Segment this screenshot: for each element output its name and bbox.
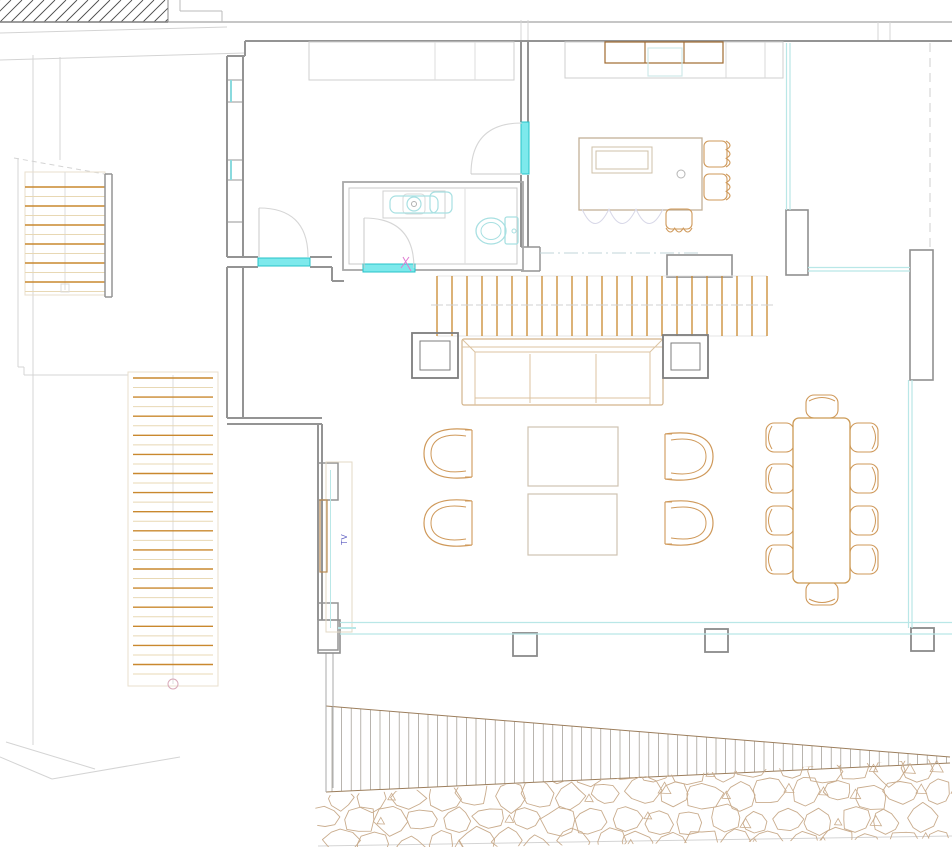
hatch-line	[33, 0, 55, 22]
stone	[926, 779, 950, 804]
bathroom-inner	[349, 188, 517, 264]
stone	[793, 777, 820, 806]
side-table	[663, 335, 708, 378]
stone	[726, 782, 755, 812]
chair-back	[769, 467, 773, 490]
stone	[777, 753, 803, 779]
stone	[638, 759, 672, 782]
sofa-line	[463, 340, 475, 352]
site-line	[0, 27, 227, 33]
stone	[908, 802, 939, 832]
deck-post	[705, 629, 728, 652]
stone	[712, 804, 740, 832]
stone	[591, 784, 619, 803]
hatch-line	[154, 0, 176, 22]
chair-seat	[850, 464, 878, 493]
window-sill	[258, 258, 310, 266]
slat-band	[431, 276, 773, 336]
chair-back	[809, 599, 835, 603]
stone-small	[341, 765, 349, 772]
stone	[684, 831, 718, 847]
hatch-line	[0, 0, 22, 22]
chair-back	[809, 398, 835, 402]
chair-seat	[766, 545, 794, 574]
stone	[322, 829, 360, 847]
chair-seat	[766, 464, 794, 493]
stone	[819, 827, 852, 847]
wall-pier	[786, 210, 808, 275]
chair-back	[872, 548, 876, 571]
side-table	[412, 333, 458, 378]
bathroom-outline	[343, 182, 523, 270]
stone	[310, 806, 340, 826]
hatch-line	[66, 0, 88, 22]
toilet-button	[512, 229, 516, 233]
dining-chair	[806, 582, 838, 605]
stone	[557, 828, 590, 847]
stairs-lower	[128, 372, 218, 689]
dining-chair	[850, 423, 878, 452]
hatch-line	[121, 0, 143, 22]
hatch-line	[0, 0, 11, 22]
bathroom-fixtures	[383, 191, 518, 244]
door-threshold	[521, 122, 529, 174]
stone	[341, 754, 368, 779]
armchair-seat	[671, 507, 706, 539]
soap-tray	[430, 192, 452, 213]
kitchen-island	[579, 138, 702, 210]
stone-small	[706, 769, 715, 777]
dining-set	[766, 395, 878, 605]
stone-small	[804, 759, 813, 767]
stone	[901, 754, 933, 782]
armchair-seat	[431, 435, 466, 472]
floor-plan: TV	[0, 0, 952, 847]
chair-seat	[806, 395, 838, 418]
kitchen-cabinet	[605, 42, 723, 63]
wedge-top	[326, 706, 950, 757]
island-chair-scallops	[582, 209, 663, 224]
stone	[602, 759, 637, 780]
stone	[743, 811, 767, 833]
armchair-seat	[431, 506, 466, 540]
stone-paving	[304, 750, 952, 847]
stone	[440, 755, 472, 783]
stone	[883, 782, 918, 805]
deck-post	[911, 628, 934, 651]
stone	[505, 757, 536, 778]
stone	[645, 811, 674, 835]
wall-pier	[910, 250, 933, 380]
tv-niche	[326, 462, 352, 632]
chair-back	[872, 509, 876, 532]
coffee-table	[528, 494, 617, 555]
kitchen	[565, 42, 783, 224]
armchair	[665, 433, 713, 480]
dining-chair	[850, 506, 878, 535]
chair-back	[769, 509, 773, 532]
dining-chair	[850, 464, 878, 493]
dining-table	[793, 418, 850, 583]
stone	[687, 783, 724, 809]
hatch-line	[132, 0, 154, 22]
stone	[514, 808, 541, 830]
armchair	[665, 501, 713, 545]
site-line	[0, 757, 52, 779]
side-table-inner	[420, 341, 450, 370]
island-knob	[677, 170, 685, 178]
armchair	[424, 500, 472, 546]
chair-seat	[850, 423, 878, 452]
stone	[844, 807, 871, 833]
stone	[540, 807, 574, 837]
chair-seat	[766, 423, 794, 452]
stone	[677, 812, 702, 834]
toilet-bowl-inner	[481, 223, 501, 240]
dining-chair	[766, 423, 794, 452]
stone-small	[850, 789, 861, 799]
dining-chair	[766, 545, 794, 574]
sofa	[462, 339, 663, 405]
doors	[259, 123, 522, 268]
deck-wall-block	[318, 620, 340, 653]
stone	[444, 807, 471, 833]
stone	[661, 782, 688, 807]
stone	[491, 827, 522, 847]
chair-seat	[850, 545, 878, 574]
hatch-line	[44, 0, 66, 22]
stone-small	[740, 818, 751, 828]
island-cooktop	[596, 151, 648, 169]
stone	[345, 807, 374, 831]
bar-stool	[704, 141, 730, 167]
stone	[669, 760, 704, 784]
bar-stool	[704, 174, 730, 200]
stone	[823, 781, 849, 800]
stairs-upper	[25, 172, 105, 295]
chair-back	[872, 426, 876, 449]
wedge-hatch	[326, 706, 950, 792]
hatch-line	[55, 0, 77, 22]
hatch-block	[0, 0, 187, 22]
stone	[598, 828, 627, 847]
dining-chair	[766, 506, 794, 535]
stone	[555, 782, 585, 810]
chair-back	[769, 548, 773, 571]
stone-small	[769, 760, 777, 767]
hatch-line	[88, 0, 110, 22]
tv-label: TV	[340, 534, 349, 545]
living-furniture	[412, 141, 730, 555]
door-swing-arc	[471, 123, 522, 174]
stone	[753, 778, 786, 803]
sofa-line	[650, 340, 662, 352]
hatch-line	[11, 0, 33, 22]
hatch-lines	[0, 0, 187, 22]
stone	[790, 831, 819, 847]
hatch-line	[77, 0, 99, 22]
stone	[852, 834, 880, 847]
bar-stool	[666, 209, 692, 232]
wardrobe	[309, 42, 514, 80]
stone	[475, 754, 509, 778]
stone	[575, 756, 604, 786]
stone	[804, 808, 831, 835]
dining-chair	[766, 464, 794, 493]
side-table-inner	[671, 343, 700, 370]
deck-post	[513, 633, 537, 656]
door-swing-arc	[259, 208, 308, 257]
chair-seat	[766, 506, 794, 535]
stool-seat	[704, 174, 727, 200]
stone	[304, 752, 339, 779]
faucet	[407, 197, 421, 211]
stone-small	[835, 819, 842, 826]
armchair	[424, 429, 472, 478]
site-line	[52, 757, 180, 779]
stone-small	[585, 794, 593, 802]
chair-seat	[850, 506, 878, 535]
hatch-line	[110, 0, 132, 22]
stone	[874, 809, 899, 834]
stone	[613, 807, 643, 832]
stones	[304, 750, 952, 847]
stone	[890, 832, 919, 847]
stone	[773, 808, 804, 830]
coffee-table	[528, 427, 618, 486]
stool-seat	[704, 141, 727, 167]
stone	[397, 836, 426, 847]
stool-seat	[666, 209, 692, 229]
site-line	[0, 53, 245, 60]
stone	[575, 808, 607, 834]
dining-chair	[850, 545, 878, 574]
stone	[712, 757, 735, 782]
hatch-line	[99, 0, 121, 22]
kitchen-sink	[648, 48, 682, 76]
chair-back	[872, 467, 876, 490]
stone	[407, 810, 438, 829]
armchair-seat	[671, 439, 706, 474]
stone-small	[870, 816, 881, 826]
stone	[808, 758, 843, 783]
faucet-handle	[412, 202, 417, 207]
stone-small	[377, 817, 384, 824]
stone-small	[505, 815, 513, 823]
stone	[472, 809, 504, 828]
chair-seat	[806, 582, 838, 605]
sideboard	[667, 255, 732, 277]
stone	[622, 831, 653, 847]
hatch-line	[143, 0, 165, 22]
stone	[927, 831, 951, 847]
dining-chair	[806, 395, 838, 418]
chair-back	[769, 426, 773, 449]
hatch-line	[22, 0, 44, 22]
stone	[524, 835, 550, 847]
